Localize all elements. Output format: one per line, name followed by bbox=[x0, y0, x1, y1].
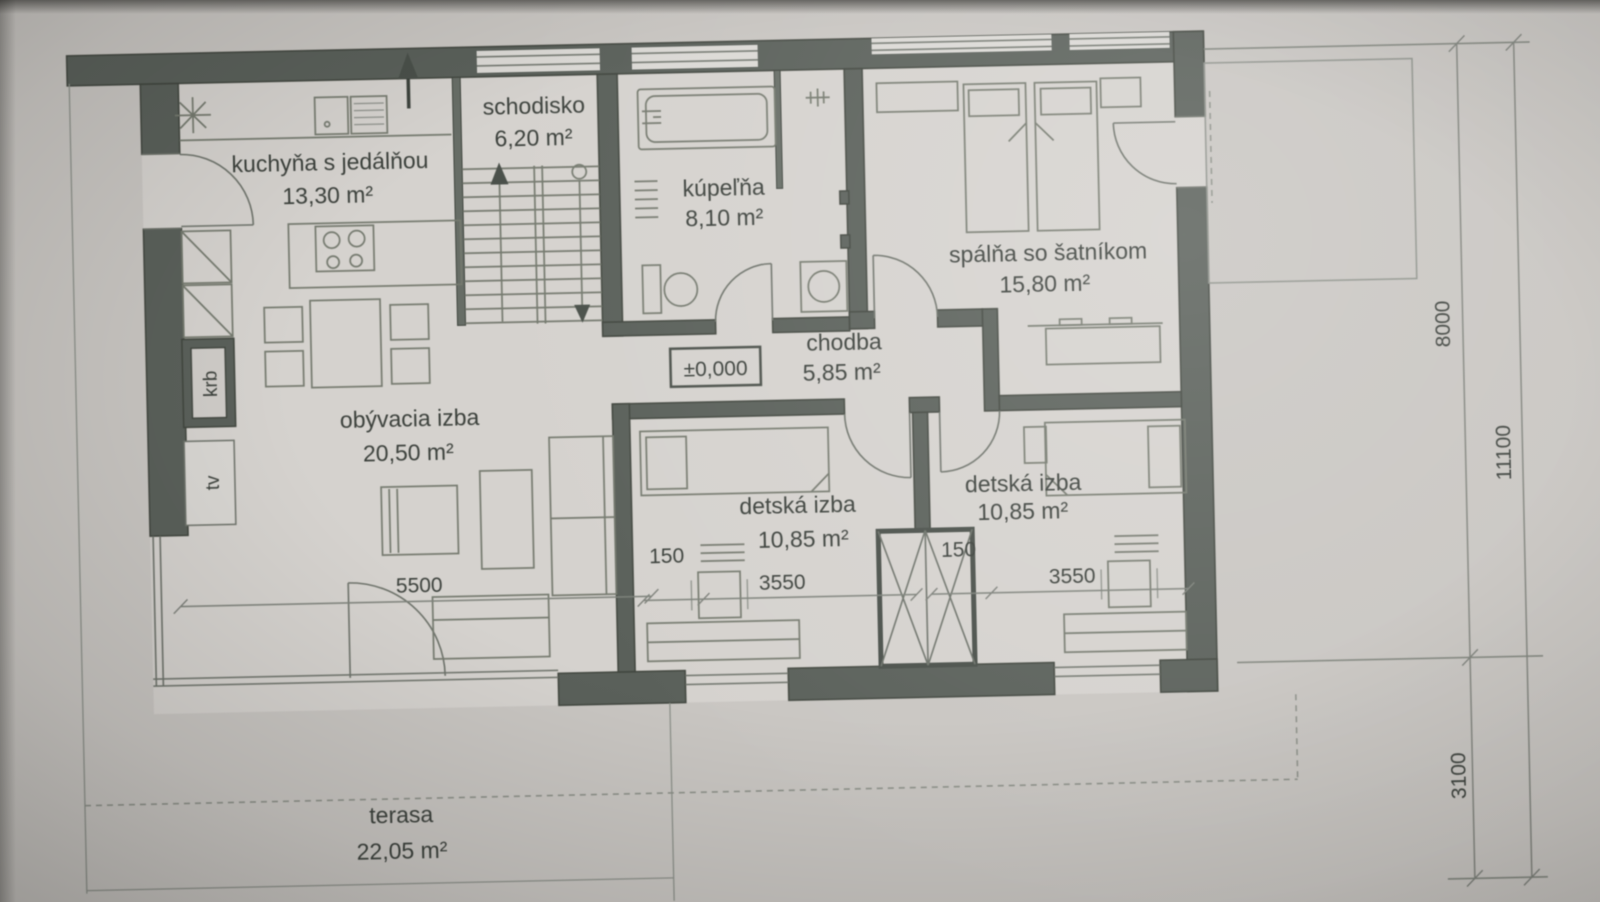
kitchen-area: 13,30 m² bbox=[282, 181, 374, 209]
terrace-area: 22,05 m² bbox=[356, 837, 448, 865]
kids-room-1-name: detská izba bbox=[739, 491, 856, 520]
kids-room-1-area: 10,85 m² bbox=[758, 525, 850, 553]
dim-3550-a: 3550 bbox=[759, 571, 806, 595]
dim-5500: 5500 bbox=[396, 574, 443, 598]
fridge-icon bbox=[175, 97, 212, 134]
north-window-staircase bbox=[477, 48, 600, 73]
floor-plan: krb tv bbox=[0, 0, 1600, 902]
terrace-name: terasa bbox=[369, 801, 434, 828]
kids-room-2-area: 10,85 m² bbox=[977, 497, 1069, 525]
north-window-bathroom bbox=[632, 45, 758, 70]
fireplace-label: krb bbox=[201, 370, 223, 397]
dim-11100: 11100 bbox=[1492, 425, 1516, 481]
fireplace-icon: krb bbox=[182, 338, 236, 427]
living-room-area: 20,50 m² bbox=[363, 439, 455, 467]
dim-3100: 3100 bbox=[1447, 752, 1471, 799]
dimension-right-side: 8000 11100 3100 bbox=[1204, 34, 1548, 892]
dim-150-a: 150 bbox=[649, 545, 685, 569]
north-window-bedroom-2 bbox=[1069, 32, 1169, 50]
tv-niche-icon: tv bbox=[184, 440, 236, 525]
bathroom-name: kúpeľňa bbox=[682, 174, 765, 202]
hallway-name: chodba bbox=[806, 328, 882, 356]
kitchen-name: kuchyňa s jedálňou bbox=[231, 147, 428, 177]
side-terrace-outline bbox=[1204, 59, 1417, 283]
building-floor bbox=[140, 31, 1218, 714]
dim-150-b: 150 bbox=[941, 538, 977, 562]
floor-plan-photo: krb tv bbox=[0, 0, 1600, 902]
hallway-area: 5,85 m² bbox=[802, 358, 881, 386]
floor-level-value: ±0,000 bbox=[683, 357, 748, 381]
tv-label: tv bbox=[203, 475, 224, 491]
bathroom-area: 8,10 m² bbox=[685, 204, 764, 232]
staircase-name: schodisko bbox=[482, 92, 585, 120]
kids-room-2-name: detská izba bbox=[965, 469, 1082, 498]
dim-8000: 8000 bbox=[1431, 300, 1455, 347]
bedroom-area: 15,80 m² bbox=[999, 270, 1091, 298]
bedroom-name: spálňa so šatníkom bbox=[949, 237, 1148, 267]
staircase-area: 6,20 m² bbox=[494, 124, 573, 152]
living-room-name: obývacia izba bbox=[340, 404, 480, 433]
dim-3550-b: 3550 bbox=[1049, 565, 1096, 589]
